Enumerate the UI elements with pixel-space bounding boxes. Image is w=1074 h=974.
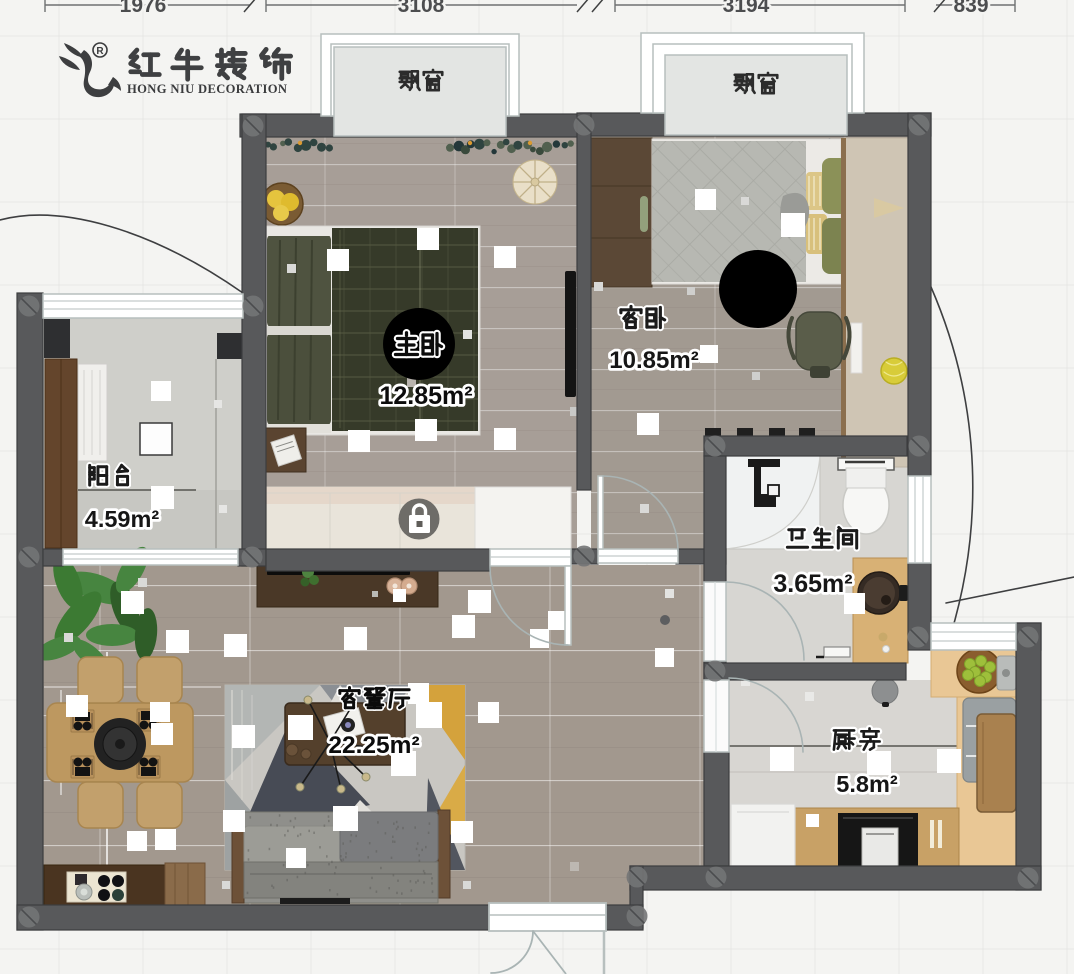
svg-text:22.25m²: 22.25m²	[328, 732, 419, 759]
svg-text:3108: 3108	[398, 0, 445, 17]
svg-text:R: R	[96, 46, 104, 57]
svg-text:3194: 3194	[723, 0, 770, 17]
svg-text:1976: 1976	[120, 0, 167, 17]
svg-text:12.85m²: 12.85m²	[379, 382, 472, 410]
svg-text:4.59m²: 4.59m²	[85, 506, 160, 532]
svg-text:3.65m²: 3.65m²	[773, 570, 852, 598]
svg-text:HONG NIU DECORATION: HONG NIU DECORATION	[127, 82, 287, 96]
svg-text:10.85m²: 10.85m²	[609, 347, 698, 374]
svg-text:5.8m²: 5.8m²	[836, 771, 898, 797]
svg-text:839: 839	[953, 0, 988, 17]
